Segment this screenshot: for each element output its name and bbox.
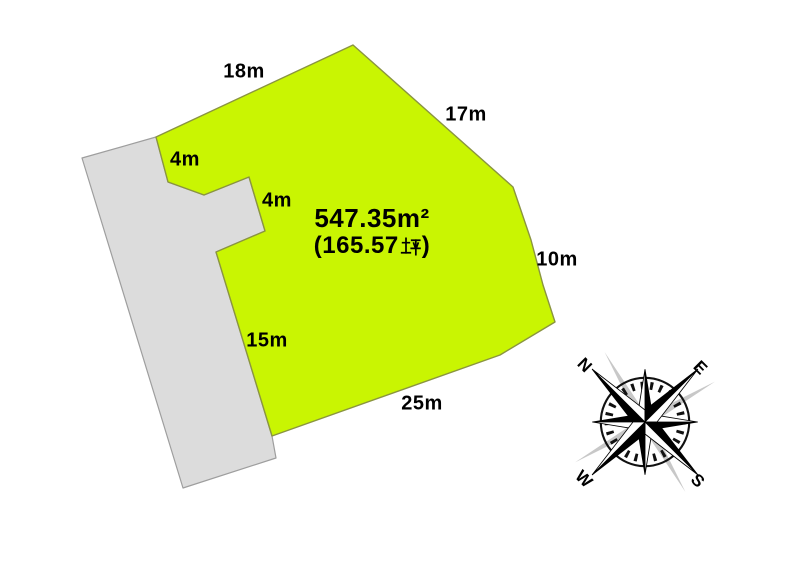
dim-label-setback-inner: 4m — [262, 190, 292, 213]
compass-west-label: W — [571, 467, 596, 492]
dim-label-bottom: 25m — [401, 393, 443, 416]
compass-north-label: N — [574, 354, 596, 376]
area-tsubo-text: (165.57 ) — [314, 232, 430, 259]
area-tsubo-close: ) — [422, 232, 431, 259]
dim-label-left: 15m — [246, 330, 288, 353]
area-label: 547.35m² (165.57 ) — [314, 205, 430, 259]
dim-label-upper-right: 17m — [445, 104, 487, 127]
area-tsubo-open: (165.57 — [314, 232, 399, 259]
tsubo-unit-glyph — [400, 236, 421, 257]
land-plot-diagram: 18m 17m 4m 4m 10m 15m 25m 547.35m² (165.… — [0, 0, 800, 566]
dim-label-setback-upper: 4m — [170, 149, 200, 172]
dim-label-top: 18m — [223, 61, 265, 84]
compass-rose-icon: N E W S — [560, 337, 730, 507]
compass-south-label: S — [687, 470, 708, 491]
dim-label-right: 10m — [536, 249, 578, 272]
area-sqm-text: 547.35m² — [314, 205, 430, 232]
